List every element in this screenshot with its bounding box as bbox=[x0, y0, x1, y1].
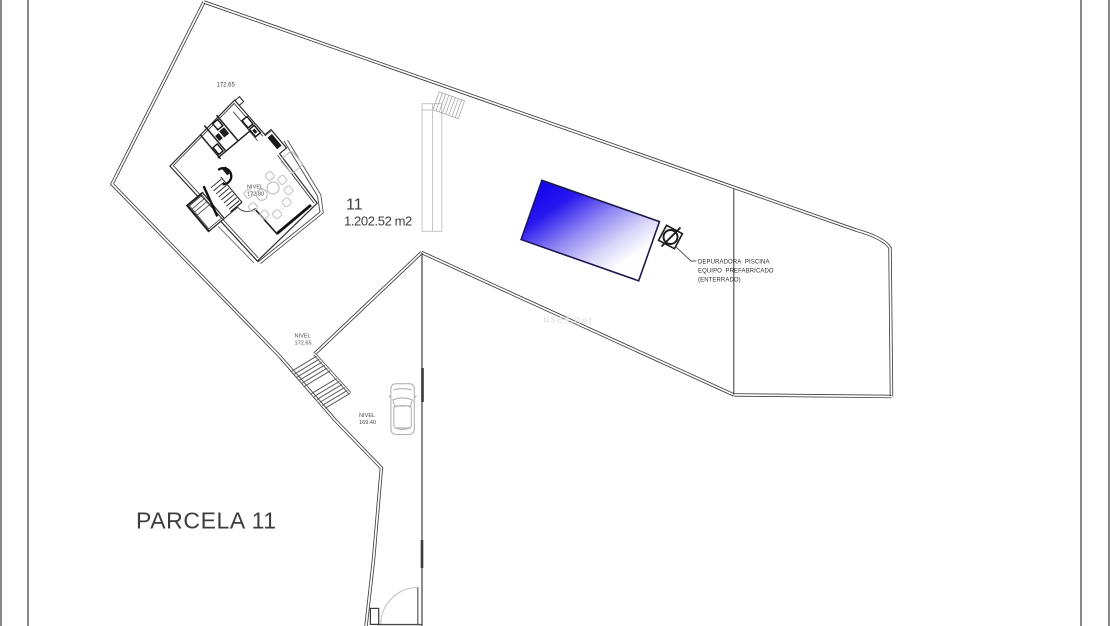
svg-text:172.65: 172.65 bbox=[295, 341, 312, 347]
svg-text:(ENTERRADO): (ENTERRADO) bbox=[698, 278, 741, 284]
svg-text:11: 11 bbox=[346, 197, 363, 214]
svg-text:EQUIPO PREFABRICADO: EQUIPO PREFABRICADO bbox=[698, 269, 774, 275]
svg-text:172.80: 172.80 bbox=[247, 192, 264, 198]
svg-text:169.40: 169.40 bbox=[359, 420, 376, 426]
svg-text:DEPURADORA PISCINA: DEPURADORA PISCINA bbox=[698, 260, 770, 266]
svg-text:NIVEL: NIVEL bbox=[359, 413, 375, 419]
svg-text:1.202.52 m2: 1.202.52 m2 bbox=[344, 214, 412, 229]
svg-text:PARCELA 11: PARCELA 11 bbox=[136, 508, 277, 534]
svg-text:NIVEL: NIVEL bbox=[247, 185, 263, 191]
svg-text:NIVEL: NIVEL bbox=[295, 334, 311, 340]
svg-text:172.65: 172.65 bbox=[217, 83, 236, 89]
